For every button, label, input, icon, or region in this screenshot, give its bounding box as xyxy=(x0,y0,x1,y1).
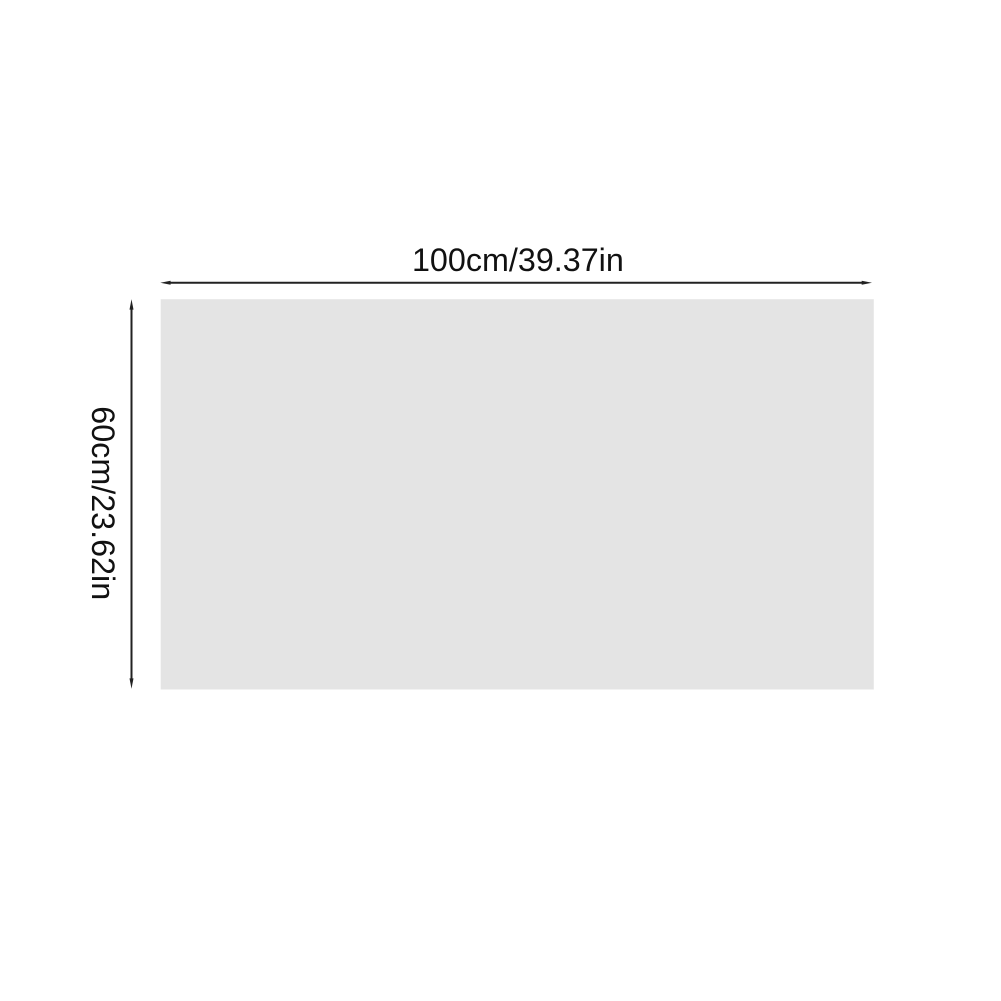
svg-text:60cm/23.62in: 60cm/23.62in xyxy=(85,406,121,600)
svg-text:100cm/39.37in: 100cm/39.37in xyxy=(412,242,624,278)
